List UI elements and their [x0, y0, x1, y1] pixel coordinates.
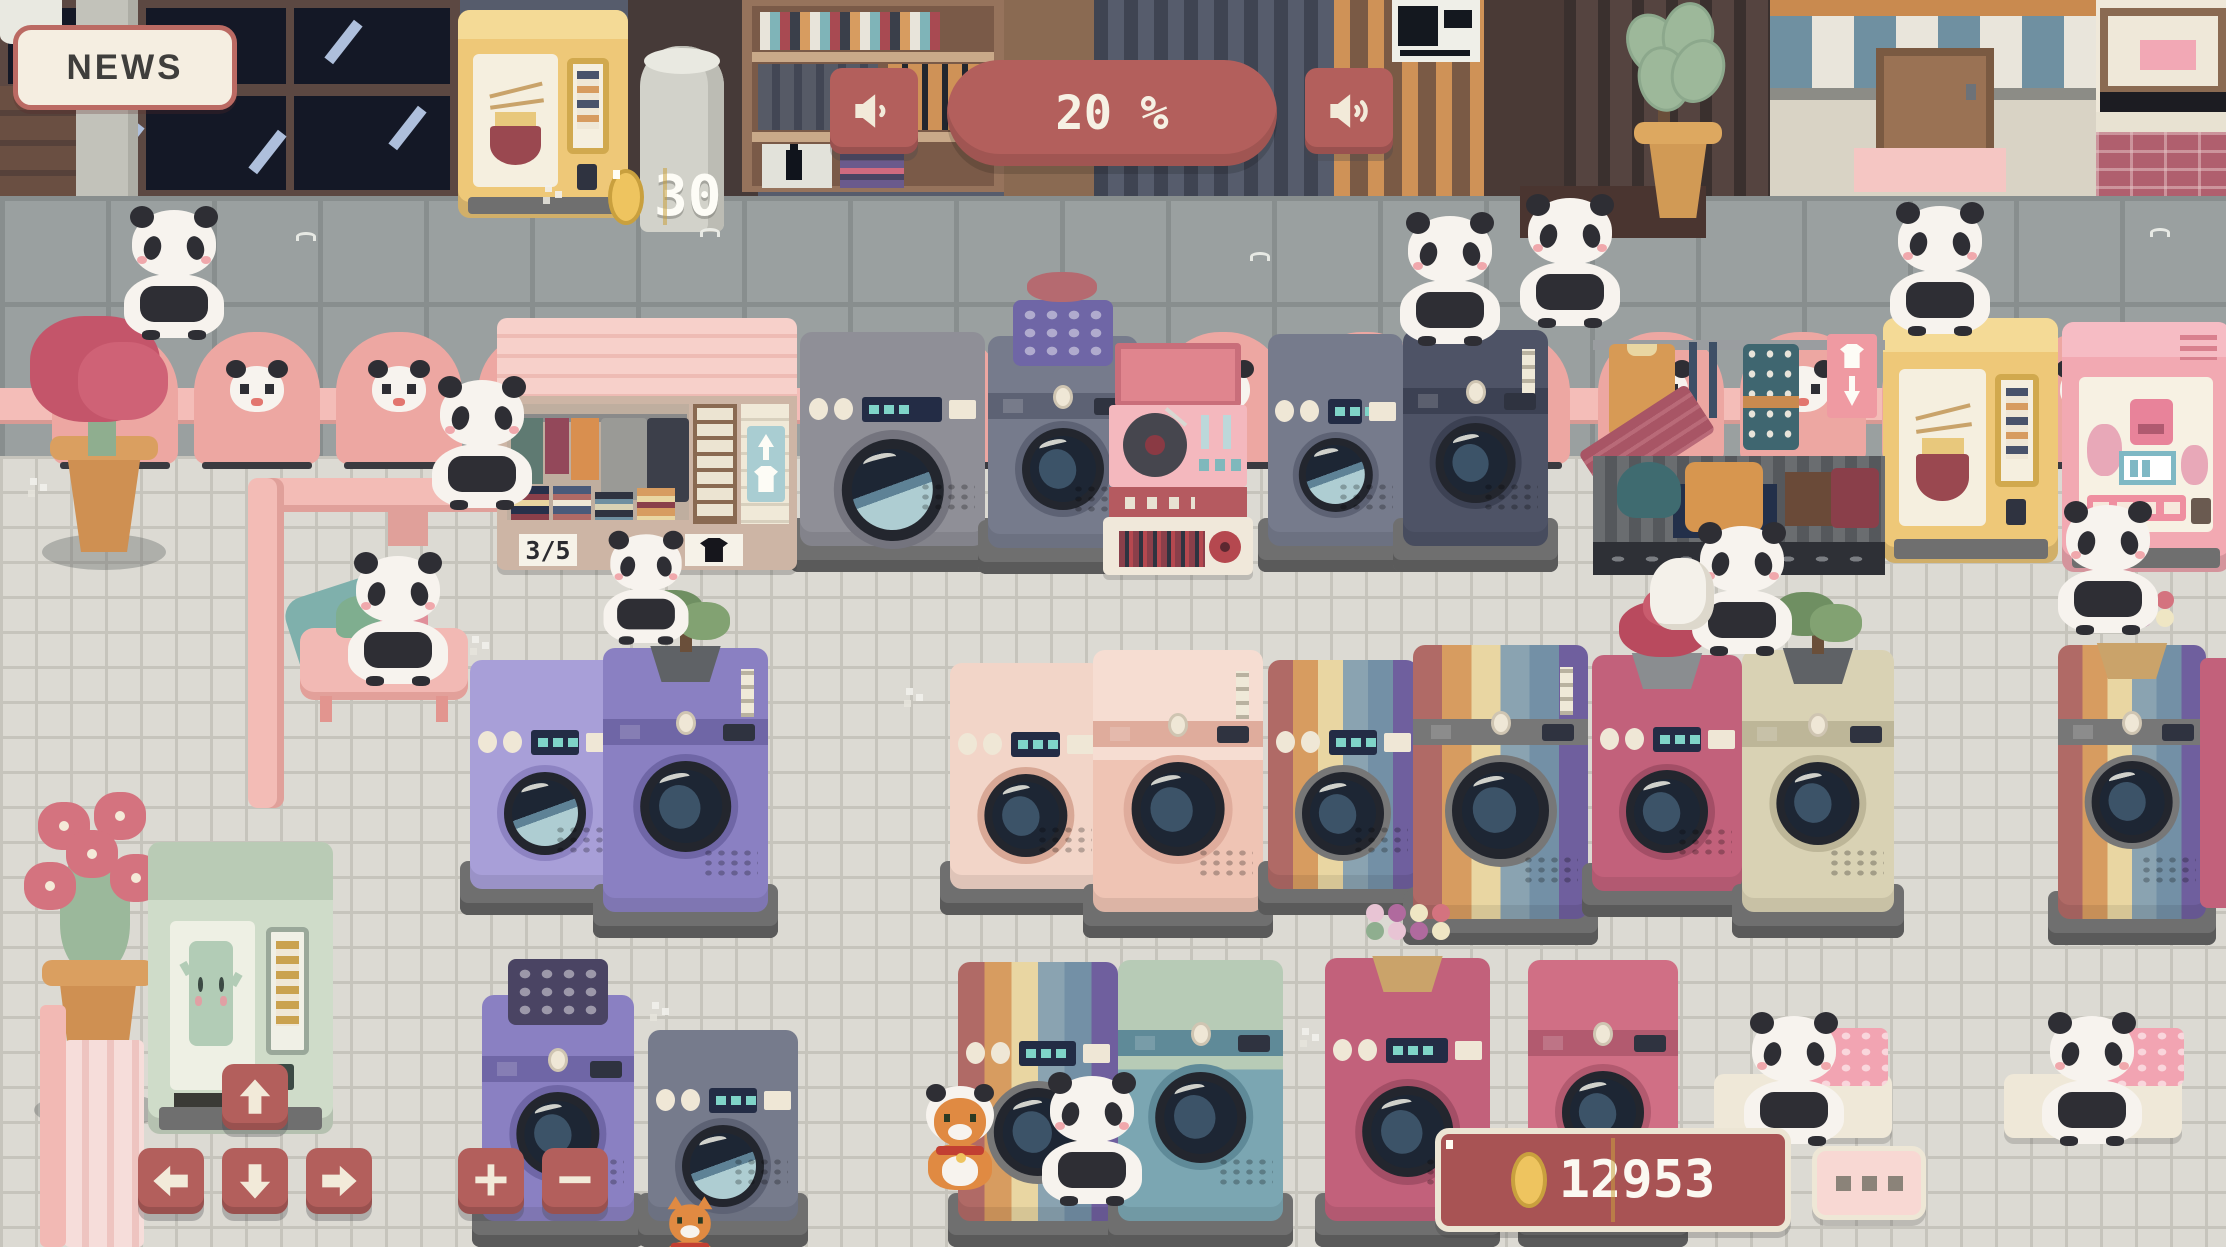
pixel-part [1058, 1152, 1126, 1188]
pixel-part [1675, 735, 1685, 744]
pixel-part [1808, 1136, 1826, 1146]
pixel-part [220, 996, 227, 1007]
pixel-part [648, 1030, 798, 1221]
pixel-part [2058, 1092, 2126, 1128]
pixel-part [2181, 445, 2208, 485]
pixel-part [698, 1134, 727, 1151]
zoom-out-button[interactable]: − [542, 1148, 608, 1214]
pixel-part [2191, 498, 2211, 524]
poster-sign [1392, 0, 1480, 62]
pixel-part [372, 366, 426, 412]
pixel-part [265, 384, 274, 394]
pixel-part [1543, 1036, 1563, 1050]
pipe-foot [388, 510, 428, 546]
pixel-part [1708, 602, 1776, 638]
pixel-part [950, 663, 1102, 889]
game-screen: 3/5 [0, 0, 2226, 1247]
pixel-part [1019, 306, 1107, 360]
pixel-part [1366, 738, 1376, 747]
speaker-high-icon [1321, 83, 1377, 139]
pixel-part [1708, 730, 1735, 749]
pixel-part [991, 1042, 1010, 1064]
pixel-part [2180, 335, 2217, 360]
pixel-part [226, 360, 246, 378]
washing-machine[interactable] [470, 660, 620, 915]
pixel-part [473, 54, 558, 187]
pixel-part [1538, 318, 1556, 328]
speaker-low-icon [846, 83, 902, 139]
pixel-part [2128, 501, 2152, 523]
panda-character [1884, 206, 1996, 334]
pixel-part [1785, 770, 1852, 837]
pixel-part [393, 398, 405, 406]
panda-character [2052, 505, 2164, 633]
pixel-part [1504, 393, 1536, 410]
pixel-part [1462, 772, 1539, 849]
pixel-part [1592, 655, 1742, 891]
washing-machine[interactable] [1268, 334, 1403, 572]
pixel-part [553, 738, 563, 747]
machine-decor [500, 937, 616, 1029]
pixel-part [1384, 733, 1411, 752]
pixel-part [1106, 1196, 1124, 1206]
pixel-part [1810, 604, 1862, 642]
rack-sign [1827, 334, 1877, 418]
pixel-part [2048, 1012, 2072, 1034]
pixel-part [1597, 244, 1607, 252]
pixel-part [1698, 522, 1722, 544]
pixel-part [1431, 725, 1451, 739]
pixel-part [2006, 388, 2028, 458]
pixel-part [497, 1062, 517, 1076]
pixel-part [458, 10, 628, 39]
pixel-part [1627, 653, 1707, 689]
pixel-part [2138, 424, 2164, 434]
pan-down-button[interactable] [222, 1148, 288, 1214]
pixel-part [2071, 551, 2081, 559]
pixel-part [131, 873, 141, 883]
pixel-part [1313, 446, 1340, 461]
pixel-part [1386, 1038, 1448, 1063]
pixel-part [919, 482, 975, 512]
pixel-part [884, 405, 894, 414]
pixel-part [568, 738, 578, 747]
pixel-part [1916, 454, 1969, 501]
pixel-part [1413, 262, 1423, 270]
pixel-part [1470, 212, 1494, 234]
pixel-part [1366, 904, 1384, 922]
pixel-part [653, 779, 706, 834]
control-panel [1275, 398, 1397, 425]
pixel-part [2142, 460, 2150, 477]
pixel-part [1238, 1035, 1270, 1052]
pixel-part [2164, 502, 2180, 514]
pixel-part [1757, 1062, 1767, 1070]
stall-shirt-tag [685, 534, 743, 566]
pixel-part [1393, 1046, 1403, 1055]
pixel-part [268, 360, 288, 378]
pixel-part [1406, 212, 1430, 234]
pixel-part [502, 376, 526, 398]
pixel-part [2060, 1136, 2078, 1146]
pixel-part [702, 848, 758, 878]
pixel-part [198, 977, 203, 992]
volume-right-button[interactable] [1305, 68, 1393, 154]
steam-squiggle [2150, 228, 2170, 237]
ficus-plant [1628, 2, 1783, 262]
pixel-part [140, 286, 208, 322]
washing-machine[interactable] [1093, 650, 1263, 938]
ellipsis-icon [1836, 1176, 1851, 1191]
pixel-part [489, 82, 543, 99]
pixel-part [1584, 318, 1602, 328]
pixel-part [680, 1225, 699, 1238]
arrow-right-icon [319, 1161, 359, 1201]
pixel-part [438, 376, 462, 398]
pixel-part [603, 648, 768, 912]
more-menu-button[interactable] [1812, 1146, 1926, 1220]
panda-character [426, 380, 538, 508]
pixel-part [42, 960, 154, 986]
pixel-part [731, 1096, 741, 1105]
control-panel [1276, 729, 1411, 756]
slat-bench [64, 1040, 144, 1247]
washer-door [633, 754, 739, 860]
panda-chair [194, 332, 320, 464]
pixel-part [2087, 424, 2122, 477]
pixel-part [2073, 725, 2093, 739]
pixel-part [490, 98, 544, 110]
pixel-part [458, 10, 628, 218]
pixel-part [2055, 1062, 2065, 1070]
pixel-part [610, 534, 681, 590]
pixel-part [1329, 730, 1377, 755]
pixel-part [2074, 581, 2142, 617]
pixel-part [1352, 825, 1408, 855]
pixel-part [445, 426, 455, 434]
pixel-part [1821, 1062, 1831, 1070]
pixel-part [1896, 202, 1920, 224]
pixel-part [1141, 772, 1216, 847]
pixel-part [509, 426, 519, 434]
pixel-part [1093, 650, 1263, 912]
ramen-vending-machine[interactable] [458, 10, 628, 218]
pixel-part [663, 531, 683, 550]
pink-curtain [40, 1005, 66, 1247]
pixel-part [59, 821, 69, 831]
pixel-part [418, 552, 442, 574]
pan-left-button[interactable] [138, 1148, 204, 1214]
pixel-part [2140, 855, 2196, 885]
pixel-part [949, 400, 976, 419]
pixel-part [2130, 460, 2138, 477]
arrow-up-icon [756, 434, 776, 460]
pixel-part [698, 1217, 703, 1223]
cat-character [656, 1195, 723, 1247]
pixel-part [1060, 1196, 1078, 1206]
pixel-part [407, 384, 416, 394]
pixel-part [671, 1243, 709, 1247]
pixel-part [809, 398, 828, 420]
pixel-part [899, 405, 909, 414]
sparkle-mark [545, 185, 552, 192]
pixel-part [1358, 1039, 1377, 1061]
pan-up-button[interactable] [222, 1064, 288, 1130]
pixel-part [1634, 1035, 1666, 1052]
ramen-stock-counter: 30 [608, 164, 721, 229]
pixel-part [1526, 194, 1550, 216]
pixel-part [1388, 922, 1406, 940]
pixel-part [1403, 330, 1548, 546]
pixel-part [2092, 643, 2172, 679]
washing-machine[interactable] [950, 663, 1102, 915]
pixel-part [503, 731, 522, 753]
record-player[interactable] [1103, 343, 1253, 575]
pixel-part [2106, 1136, 2124, 1146]
pixel-part [1418, 394, 1438, 408]
pixel-part [436, 696, 448, 722]
washing-machine[interactable] [1268, 660, 1418, 915]
steam-squiggle [1250, 252, 1270, 261]
control-panel [1600, 726, 1735, 753]
washing-machine[interactable] [603, 648, 768, 938]
pixel-part [1455, 1041, 1482, 1060]
stall-body [497, 396, 797, 526]
door-mat [1854, 148, 2006, 192]
pixel-part [276, 941, 299, 1026]
pixel-part [1625, 728, 1644, 750]
pixel-part [1135, 1036, 1155, 1050]
pixel-part [470, 660, 620, 889]
shirt-icon [754, 466, 778, 492]
zoom-in-button[interactable]: + [458, 1148, 524, 1214]
panda-character [1738, 1016, 1850, 1144]
pixel-part [656, 1089, 675, 1111]
milk-cup-icon [2130, 399, 2173, 446]
pixel-part [201, 256, 211, 264]
pixel-part [1416, 292, 1484, 328]
pixel-part [1110, 727, 1130, 741]
pixel-part [1491, 711, 1511, 735]
pixel-part [681, 1089, 700, 1111]
news-button[interactable]: NEWS [13, 25, 237, 110]
pixel-part [862, 397, 942, 422]
panda-character [1036, 1076, 1148, 1204]
beam [1484, 0, 1564, 196]
pixel-part [450, 500, 468, 510]
price-note [1230, 663, 1255, 727]
panda-character [342, 556, 454, 684]
pixel-part [1408, 1046, 1418, 1055]
washing-machine[interactable] [1592, 655, 1742, 917]
pixel-part [148, 842, 333, 900]
pixel-part [240, 384, 249, 394]
pixel-part [983, 733, 1002, 755]
pixel-part [230, 971, 243, 986]
stall-awning [497, 318, 797, 398]
pixel-part [1482, 482, 1538, 512]
pixel-part [1003, 399, 1023, 413]
pixel-part [78, 342, 168, 420]
pixel-part [1757, 727, 1777, 741]
steam-squiggle [700, 228, 720, 237]
pixel-part [1542, 724, 1574, 741]
pixel-part [1769, 572, 1779, 580]
pixel-part [658, 636, 673, 645]
pixel-part [1268, 660, 1418, 889]
cat-character [918, 1086, 1002, 1190]
panda-character [118, 210, 230, 338]
pixel-part [1375, 1104, 1428, 1159]
pixel-part [2119, 1062, 2129, 1070]
pixel-part [1452, 762, 1548, 858]
sparkle-mark [906, 688, 913, 695]
pixel-part [1776, 762, 1860, 846]
pixel-part [364, 632, 432, 668]
clothing-stall[interactable]: 3/5 [497, 318, 797, 570]
pixel-part [1048, 740, 1058, 749]
pixel-part [366, 676, 384, 686]
pixel-part [1197, 848, 1253, 878]
pixel-part [520, 781, 549, 798]
pixel-part [1967, 252, 1977, 260]
control-panel [478, 729, 613, 756]
pixel-part [1788, 778, 1837, 829]
arrow-down-icon [235, 1161, 275, 1201]
pixel-part [412, 676, 430, 686]
pixel-part [1760, 1092, 1828, 1128]
pixel-part [834, 398, 853, 420]
pixel-part [1756, 646, 1774, 656]
pixel-part [1368, 956, 1448, 992]
pixel-part [966, 1042, 985, 1064]
pixel-part [1960, 202, 1984, 224]
arrow-up-icon [235, 1077, 275, 1117]
pixel-part [132, 210, 216, 276]
pixel-part [2058, 645, 2206, 919]
pixel-part [368, 360, 388, 378]
pixel-part [2099, 769, 2164, 834]
pixel-part [869, 405, 879, 414]
pixel-part [1423, 1046, 1433, 1055]
pixel-part [1018, 740, 1028, 749]
pixel-part [266, 927, 309, 1055]
pixel-part [1808, 713, 1828, 737]
pixel-part [1191, 1022, 1211, 1046]
pixel-part [1119, 1122, 1129, 1130]
shirt-icon [1840, 344, 1864, 368]
pixel-part [640, 761, 731, 852]
coin-balance-panel: 12953 [1435, 1128, 1791, 1232]
pixel-part [219, 977, 224, 992]
pixel-part [2112, 1012, 2136, 1034]
pixel-part [1536, 274, 1604, 310]
volume-left-button[interactable] [830, 68, 918, 154]
stall-hang-sign [747, 426, 785, 502]
pixel-part [1413, 645, 1588, 919]
pixel-part [619, 636, 634, 645]
battery-icon [2119, 451, 2175, 485]
pixel-part [87, 849, 97, 859]
pixel-part [1898, 206, 1982, 272]
pixel-part [716, 1096, 726, 1105]
pixel-part [179, 961, 192, 976]
pixel-part [2050, 1016, 2134, 1082]
control-panel [966, 1040, 1110, 1067]
pixel-part [1366, 922, 1384, 940]
washing-machine[interactable] [800, 332, 985, 572]
pixel-part [1067, 735, 1094, 754]
washer-door [1148, 1064, 1254, 1170]
pixel-part [1048, 1072, 1072, 1094]
pixel-part [1410, 922, 1428, 940]
pixel-part [531, 730, 579, 755]
pixel-part [2066, 505, 2150, 571]
laundry-basket [1013, 300, 1113, 366]
washing-machine[interactable] [2058, 645, 2206, 945]
pixel-part [1131, 762, 1225, 856]
coin-icon [1511, 1152, 1547, 1208]
washing-machine[interactable] [1403, 330, 1548, 572]
pixel-part [1590, 194, 1614, 216]
steam-squiggle [296, 232, 316, 241]
pixel-part [1762, 522, 1786, 544]
pixel-part [1056, 1049, 1066, 1058]
pixel-part [615, 573, 624, 580]
pixel-part [1690, 735, 1700, 744]
corner-shelf [2096, 0, 2226, 196]
pixel-part [496, 500, 514, 510]
pixel-part [1337, 482, 1393, 512]
mascot-icon [189, 941, 233, 1046]
stall-capacity-label: 3/5 [519, 534, 577, 566]
pixel-part [1466, 781, 1522, 839]
pixel-part [1408, 216, 1492, 282]
pixel-part [1828, 848, 1884, 878]
pixel-part [354, 552, 378, 574]
washing-machine[interactable] [1742, 650, 1894, 938]
arrow-left-icon [151, 1161, 191, 1201]
partial-machine [2200, 658, 2226, 908]
pixel-part [732, 1157, 788, 1187]
pixel-part [1328, 399, 1363, 424]
pixel-part [361, 602, 371, 610]
pixel-part [1011, 732, 1061, 757]
pixel-part [1464, 336, 1482, 346]
control-panel [1333, 1037, 1482, 1064]
machine-decor [1350, 900, 1466, 992]
pixel-part [382, 384, 391, 394]
pixel-part [590, 1061, 622, 1078]
pixel-part [142, 330, 160, 340]
vinyl-record [1123, 413, 1187, 477]
pixel-part [188, 330, 206, 340]
pixel-part [1217, 1157, 1273, 1187]
pixel-part [1528, 198, 1612, 264]
pixel-part [1388, 904, 1406, 922]
pixel-part [137, 256, 147, 264]
arrow-down-icon [1842, 376, 1862, 406]
sparkle-mark [472, 636, 479, 643]
pixel-part [677, 1217, 682, 1223]
pixel-part [676, 711, 696, 735]
pixel-part [2064, 501, 2088, 523]
pixel-part [2091, 761, 2172, 842]
pixel-part [1915, 403, 1970, 420]
pan-right-button[interactable] [306, 1148, 372, 1214]
pixel-part [1350, 407, 1360, 416]
ramen-vending-machine[interactable] [1883, 318, 2058, 563]
